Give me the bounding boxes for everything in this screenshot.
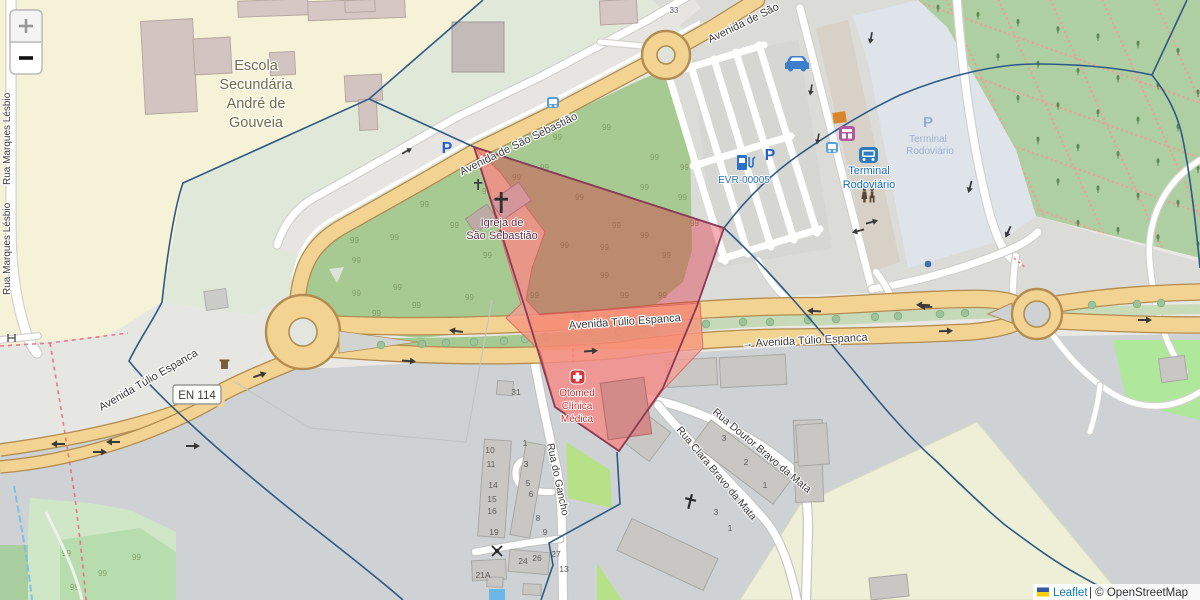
svg-text:Rua Marques Lésbio: Rua Marques Lésbio <box>2 202 13 295</box>
svg-text:99: 99 <box>390 233 399 242</box>
svg-text:11: 11 <box>487 459 496 469</box>
svg-text:3: 3 <box>714 507 719 517</box>
svg-text:31: 31 <box>511 387 521 397</box>
svg-text:10: 10 <box>485 445 495 455</box>
svg-text:19: 19 <box>489 527 499 537</box>
svg-text:| © OpenStreetMap: | © OpenStreetMap <box>1089 587 1188 599</box>
svg-text:Médica: Médica <box>561 414 594 425</box>
svg-text:99: 99 <box>483 251 492 260</box>
svg-text:99: 99 <box>420 200 429 209</box>
svg-text:27: 27 <box>551 549 561 559</box>
svg-text:15: 15 <box>487 494 497 504</box>
svg-text:99: 99 <box>132 553 141 562</box>
svg-text:21A: 21A <box>475 570 490 580</box>
svg-text:1: 1 <box>763 480 768 490</box>
svg-text:99: 99 <box>650 153 659 162</box>
svg-text:24: 24 <box>518 556 528 566</box>
svg-text:Terminal: Terminal <box>909 134 947 145</box>
svg-text:1: 1 <box>728 523 733 533</box>
svg-text:99: 99 <box>450 221 459 230</box>
svg-text:99: 99 <box>602 123 611 132</box>
svg-text:14: 14 <box>488 480 498 490</box>
svg-text:5: 5 <box>526 478 531 488</box>
svg-text:P: P <box>765 147 776 164</box>
svg-text:3: 3 <box>524 459 529 469</box>
svg-text:Leaflet: Leaflet <box>1053 587 1088 599</box>
svg-text:Gouveia: Gouveia <box>229 115 284 131</box>
svg-text:Escola: Escola <box>234 58 278 74</box>
svg-text:8: 8 <box>536 513 541 523</box>
svg-text:Terminal: Terminal <box>848 165 890 177</box>
svg-text:Rodoviário: Rodoviário <box>843 179 896 191</box>
svg-text:99: 99 <box>553 133 562 142</box>
svg-text:3: 3 <box>722 433 727 443</box>
svg-text:1: 1 <box>523 438 528 448</box>
svg-text:6: 6 <box>529 489 534 499</box>
svg-text:13: 13 <box>559 564 569 574</box>
svg-text:EVR-00005: EVR-00005 <box>718 175 770 186</box>
svg-text:9: 9 <box>543 527 548 537</box>
svg-text:São Sebastião: São Sebastião <box>466 230 538 242</box>
svg-text:26: 26 <box>532 553 542 563</box>
svg-text:99: 99 <box>98 569 107 578</box>
svg-text:99: 99 <box>678 193 687 202</box>
svg-text:16: 16 <box>487 506 497 516</box>
svg-text:EN 114: EN 114 <box>178 390 216 402</box>
svg-text:99: 99 <box>352 256 361 265</box>
svg-text:99: 99 <box>372 309 381 318</box>
svg-text:33: 33 <box>670 6 679 15</box>
svg-text:Igreja de: Igreja de <box>481 217 524 229</box>
svg-text:99: 99 <box>465 293 474 302</box>
svg-text:2: 2 <box>744 457 749 467</box>
svg-text:P: P <box>442 140 453 157</box>
svg-text:99: 99 <box>393 283 402 292</box>
svg-text:P: P <box>923 114 933 131</box>
svg-text:99: 99 <box>640 183 649 192</box>
svg-text:99: 99 <box>352 289 361 298</box>
svg-text:Otomed: Otomed <box>559 388 595 399</box>
svg-text:Secundária: Secundária <box>219 77 293 93</box>
svg-text:99: 99 <box>412 301 421 310</box>
svg-text:99: 99 <box>350 236 359 245</box>
svg-text:Rodoviário: Rodoviário <box>906 146 954 157</box>
svg-text:Clínica: Clínica <box>562 401 593 412</box>
svg-text:Rua Marques Lésbio: Rua Marques Lésbio <box>2 92 13 185</box>
svg-text:André de: André de <box>227 96 286 112</box>
svg-text:99: 99 <box>680 163 689 172</box>
